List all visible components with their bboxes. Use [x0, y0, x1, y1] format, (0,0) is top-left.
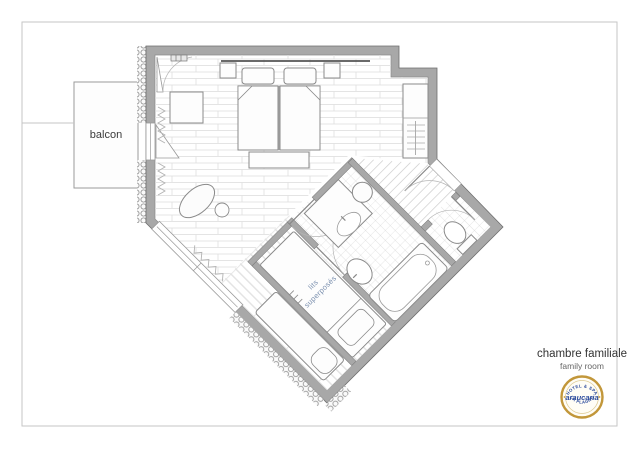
closet: [403, 84, 428, 158]
armchair-side-table: [215, 203, 229, 217]
room-title: chambre familiale: [537, 348, 627, 360]
room-subtitle: family room: [560, 361, 604, 371]
foot-bench: [249, 152, 309, 168]
nightstand-left: [220, 63, 236, 78]
floor-plan-drawing: balcon: [0, 0, 640, 452]
bed-right: [280, 86, 320, 150]
pillow-left: [242, 68, 274, 84]
nightstand-right: [324, 63, 340, 78]
side-table: [170, 92, 203, 123]
floor-plan-page: balcon: [0, 0, 640, 452]
pillow-right: [284, 68, 316, 84]
hotel-logo-badge: HOTEL & SPA araucaria LA PLAGNE: [562, 377, 603, 418]
balcony-label: balcon: [90, 129, 122, 141]
wall-vent: [171, 55, 187, 61]
logo-dot-right: [599, 396, 601, 398]
bed-left: [238, 86, 278, 150]
